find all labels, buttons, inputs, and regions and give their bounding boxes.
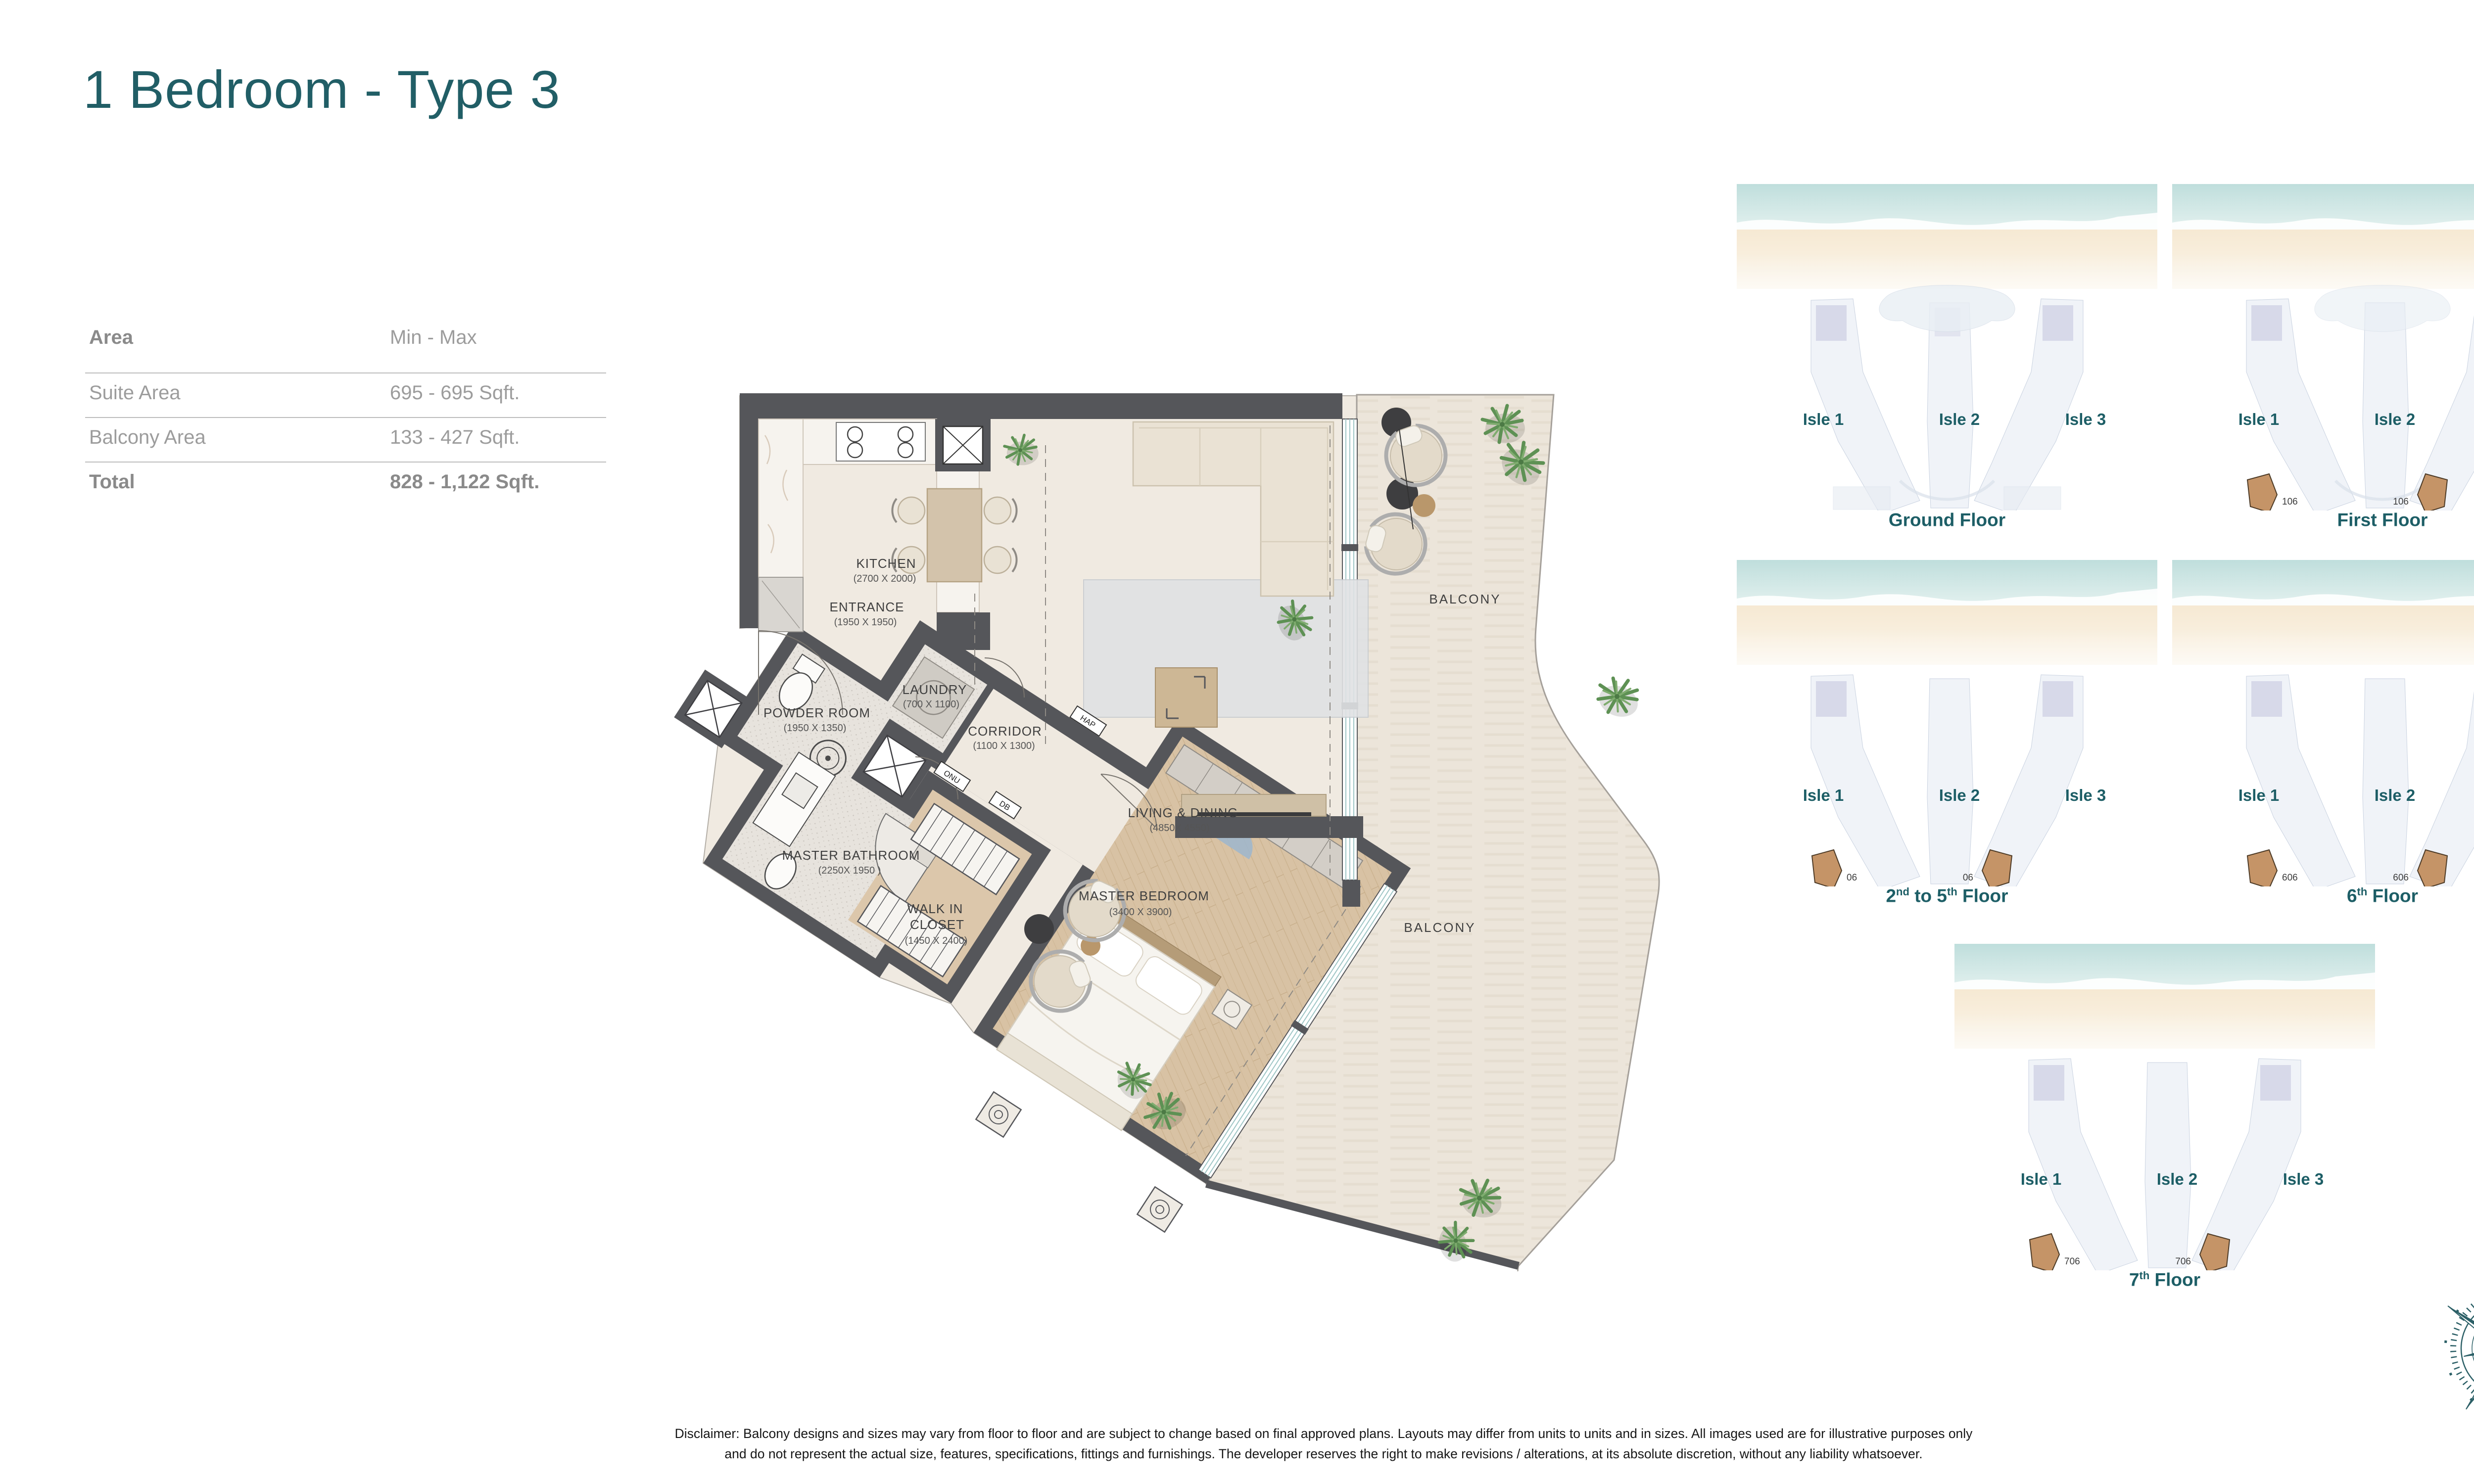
table-row-balcony: Balcony Area 133 - 427 Sqft. <box>85 426 606 449</box>
isle-1-label: Isle 1 <box>2238 410 2280 428</box>
isle-2-label: Isle 2 <box>2375 786 2416 804</box>
isle-3-label: Isle 3 <box>2283 1170 2324 1188</box>
table-rule <box>85 462 606 463</box>
table-row-total: Total 828 - 1,122 Sqft. <box>85 471 606 494</box>
label-closet-2: CLOSET <box>910 917 964 932</box>
unit-number: 06 <box>1847 873 1857 883</box>
unit-number: 606 <box>2393 873 2409 883</box>
table-row-suite: Suite Area 695 - 695 Sqft. <box>85 382 606 405</box>
coffee-table <box>1155 668 1217 727</box>
dims-bedroom: (3400 X 3900) <box>1109 907 1172 918</box>
isle-3-label: Isle 3 <box>2065 786 2106 804</box>
label-powder: POWDER ROOM <box>763 705 870 720</box>
floor-caption: 7th Floor <box>1954 1269 2375 1290</box>
label-bathroom: MASTER BATHROOM <box>782 848 920 863</box>
table-header: Area Min - Max <box>85 326 606 349</box>
dims-entrance: (1950 X 1950) <box>834 617 897 628</box>
header-minmax: Min - Max <box>390 326 477 349</box>
isle-2-label: Isle 2 <box>1939 410 1980 428</box>
compass-star <box>2425 1264 2474 1433</box>
caption-text: Ground Floor <box>1889 510 2005 530</box>
table-rule <box>85 372 606 373</box>
isle-1-label: Isle 1 <box>2238 786 2280 804</box>
unit-number: 706 <box>2175 1256 2191 1267</box>
table-rule <box>85 417 606 418</box>
dims-closet: (1450 X 2400) <box>905 935 968 946</box>
row-label: Total <box>89 471 135 493</box>
isle-1-label: Isle 1 <box>1803 410 1844 428</box>
row-label: Balcony Area <box>89 426 206 449</box>
dims-powder: (1950 X 1350) <box>784 723 847 734</box>
left-wall <box>740 393 759 628</box>
keyplan-map: Isle 1 Isle 2 Isle 3 <box>1737 184 2157 510</box>
keyplan-6th-floor: 606 606 Isle 1 Isle 2 Isle 3 6th Floor <box>2172 560 2474 906</box>
floorplan: HAP ONU DB KITCHEN (2700 X 2000) ENTRANC… <box>638 381 1712 1271</box>
header-area: Area <box>89 326 133 349</box>
row-value: 695 - 695 Sqft. <box>390 382 520 404</box>
label-living: LIVING & DINING <box>1128 805 1238 820</box>
unit-number: 06 <box>1963 873 1973 883</box>
keyplan-map: 706 706 Isle 1 Isle 2 Isle 3 <box>1954 944 2375 1270</box>
dims-kitchen: (2700 X 2000) <box>854 573 916 584</box>
isle-1-label: Isle 1 <box>2021 1170 2062 1188</box>
compass-rose: N <box>2425 1264 2474 1433</box>
isle-2-label: Isle 2 <box>1939 786 1980 804</box>
disclaimer-line2: and do not represent the actual size, fe… <box>641 1444 2006 1464</box>
label-balcony-upper: BALCONY <box>1429 592 1501 606</box>
keyplan-ground-floor: Isle 1 Isle 2 Isle 3 Ground Floor <box>1737 184 2157 530</box>
keyplan-map: 06 06 Isle 1 Isle 2 Isle 3 <box>1737 560 2157 886</box>
label-laundry: LAUNDRY <box>903 682 967 697</box>
label-kitchen: KITCHEN <box>856 556 916 571</box>
kitchen-wall-stub <box>937 612 990 650</box>
floor-caption: 6th Floor <box>2172 885 2474 906</box>
kitchen-shaft <box>935 419 991 471</box>
dims-living: (4850X 4550) <box>1149 823 1209 834</box>
caption-text: 7 <box>2129 1269 2140 1290</box>
page-title: 1 Bedroom - Type 3 <box>83 58 561 120</box>
isle-2-label: Isle 2 <box>2157 1170 2198 1188</box>
floor-caption: First Floor <box>2172 510 2474 530</box>
dims-bathroom: (2250X 1950 ) <box>818 865 881 876</box>
brochure-page: 1 Bedroom - Type 3 Area Min - Max Suite … <box>0 0 2474 1484</box>
row-label: Suite Area <box>89 382 181 404</box>
caption-text: 2 <box>1886 885 1896 906</box>
label-entrance: ENTRANCE <box>829 600 904 614</box>
unit-number: 606 <box>2282 873 2298 883</box>
isle-3-label: Isle 3 <box>2065 410 2106 428</box>
isle-1-label: Isle 1 <box>1803 786 1844 804</box>
top-wall <box>740 393 1342 419</box>
keyplan-first-floor: 106 106 Isle 1 Isle 2 Isle 3 First Floor <box>2172 184 2474 530</box>
keyplan-map: 606 606 Isle 1 Isle 2 Isle 3 <box>2172 560 2474 886</box>
keyplan-map: 106 106 Isle 1 Isle 2 Isle 3 <box>2172 184 2474 510</box>
rug <box>1084 580 1368 717</box>
unit-number: 106 <box>2393 497 2409 507</box>
dims-laundry: (700 X 1100) <box>903 699 959 710</box>
label-balcony-lower: BALCONY <box>1404 920 1475 935</box>
unit-number: 706 <box>2064 1256 2080 1267</box>
keyplan-7th-floor: 706 706 Isle 1 Isle 2 Isle 3 7th Floor <box>1954 944 2375 1290</box>
disclaimer: Disclaimer: Balcony designs and sizes ma… <box>641 1424 2006 1464</box>
caption-text: 6 <box>2347 885 2357 906</box>
area-table: Area Min - Max Suite Area 695 - 695 Sqft… <box>85 326 606 495</box>
keyplan-2nd-5th-floor: 06 06 Isle 1 Isle 2 Isle 3 2nd to 5th Fl… <box>1737 560 2157 906</box>
disclaimer-line1: Disclaimer: Balcony designs and sizes ma… <box>641 1424 2006 1444</box>
label-bedroom: MASTER BEDROOM <box>1079 888 1209 903</box>
floor-caption: Ground Floor <box>1737 510 2157 530</box>
row-value: 828 - 1,122 Sqft. <box>390 471 539 493</box>
row-value: 133 - 427 Sqft. <box>390 426 520 449</box>
dims-corridor: (1100 X 1300) <box>973 741 1035 751</box>
unit-number: 106 <box>2282 497 2298 507</box>
isle-2-label: Isle 2 <box>2375 410 2416 428</box>
label-closet-1: WALK IN <box>907 901 963 916</box>
caption-text: First Floor <box>2337 510 2428 530</box>
label-corridor: CORRIDOR <box>968 724 1042 739</box>
floor-caption: 2nd to 5th Floor <box>1737 885 2157 906</box>
